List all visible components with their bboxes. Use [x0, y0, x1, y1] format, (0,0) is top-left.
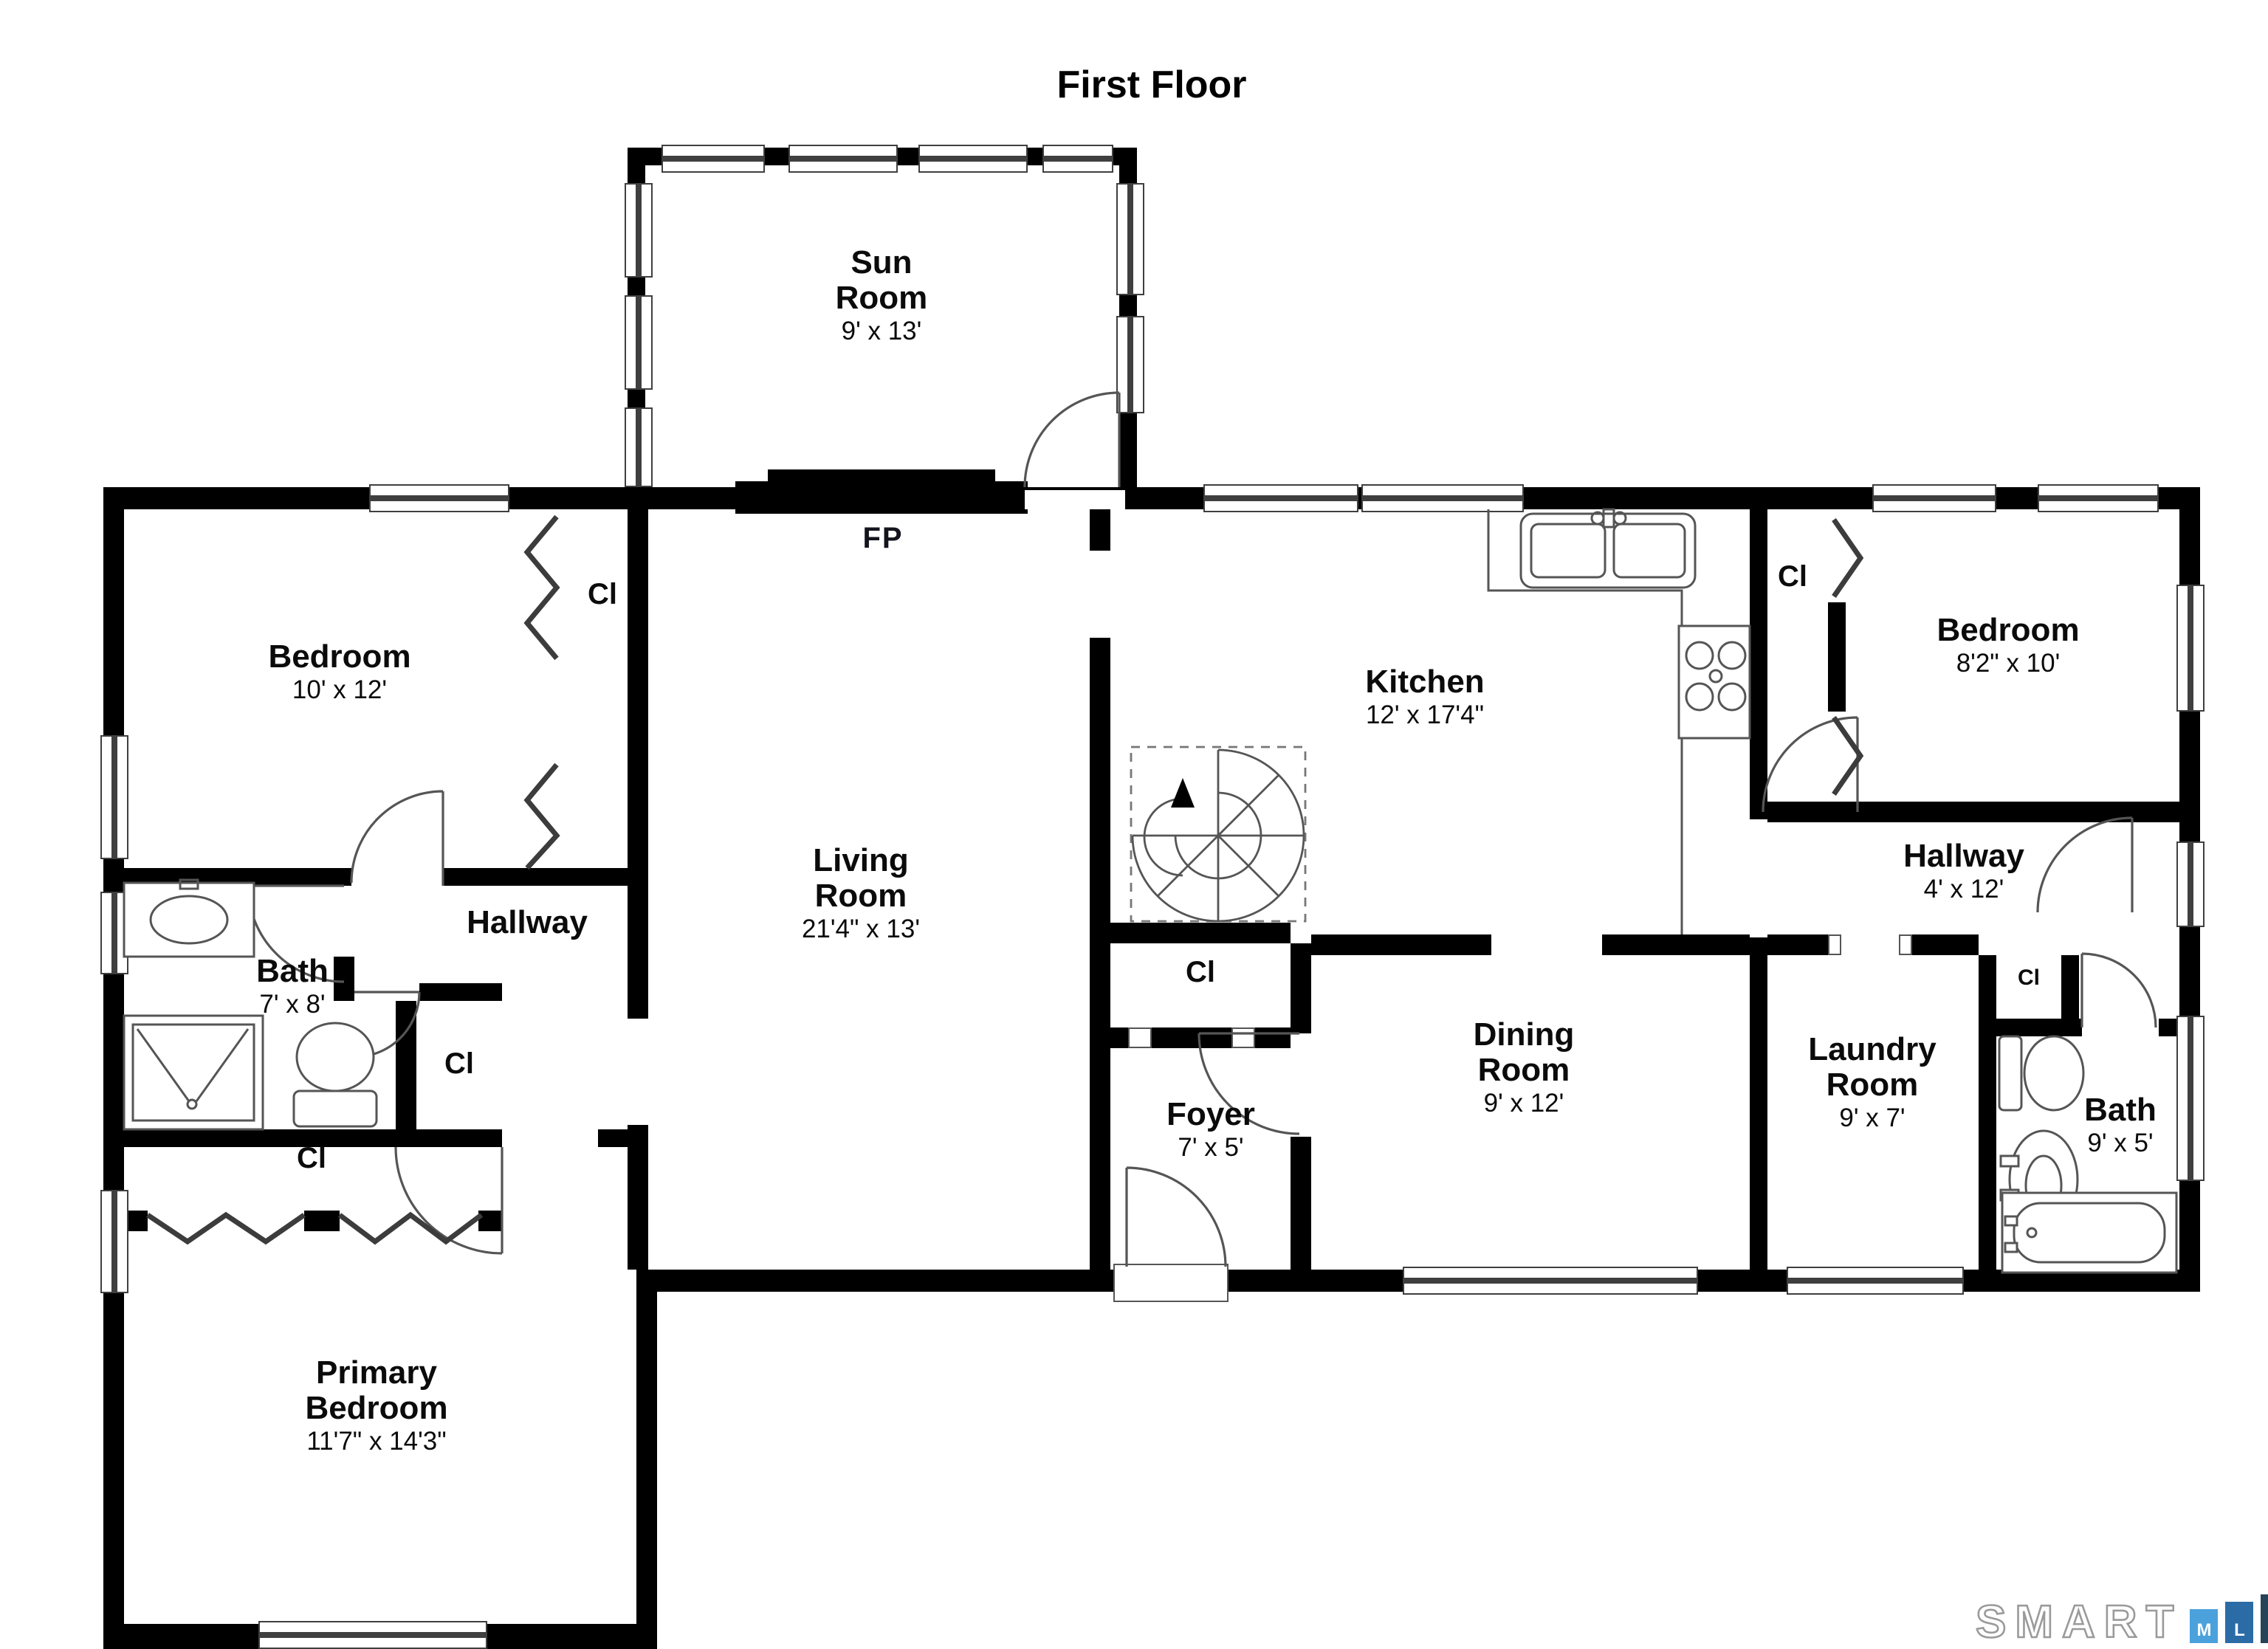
room-label-dining-room: Dining Room 9' x 12': [1447, 1017, 1601, 1118]
room-dims: 7' x 5': [1125, 1134, 1296, 1162]
room-dims: 21'4" x 13': [784, 915, 938, 943]
closet-label-bedroom-right: Cl: [1762, 561, 1824, 595]
room-label-bedroom-right: Bedroom 8'2" x 10': [1860, 613, 2156, 678]
logo-block-s: S: [2261, 1594, 2268, 1643]
logo-wordmark: SMART: [1976, 1600, 2182, 1643]
toilet-left-icon: [297, 1023, 374, 1091]
room-dims: 7' x 8': [174, 991, 410, 1019]
closet-label-bedroom-left: Cl: [571, 579, 633, 613]
room-label-hallway-left: Hallway: [409, 905, 645, 940]
closet-label-under-stairs: Cl: [1166, 957, 1234, 991]
room-label-hallway-right: Hallway 4' x 12': [1816, 839, 2111, 903]
closet-label-bath-right: Cl: [2002, 965, 2055, 991]
primary-closet-bifold-left: [148, 1215, 304, 1242]
room-name: Bedroom: [192, 639, 487, 675]
room-dims: 9' x 7': [1790, 1104, 1955, 1132]
room-label-primary-bedroom: Primary Bedroom 11'7" x 14'3": [273, 1355, 480, 1456]
room-label-foyer: Foyer 7' x 5': [1125, 1097, 1296, 1162]
room-dims: 9' x 5': [2039, 1129, 2202, 1157]
room-dims: 8'2" x 10': [1860, 650, 2156, 678]
floorplan-page: First Floor Sun Room 9' x 13' Bedroom 10…: [0, 0, 2268, 1649]
room-name: Bath: [174, 954, 410, 989]
room-name: Primary Bedroom: [273, 1355, 480, 1426]
room-dims: 11'7" x 14'3": [273, 1428, 480, 1456]
room-name: Foyer: [1125, 1097, 1296, 1132]
room-name: Hallway: [1816, 839, 2111, 874]
room-name: Sun Room: [817, 245, 946, 316]
room-name: Hallway: [409, 905, 645, 940]
bifold-doors: [148, 517, 1860, 1242]
room-label-laundry-room: Laundry Room 9' x 7': [1790, 1032, 1955, 1132]
room-name: Kitchen: [1277, 664, 1573, 700]
room-label-living-room: Living Room 21'4" x 13': [784, 843, 938, 943]
sunroom-door-arc: [1025, 393, 1119, 487]
logo-block-m: M: [2190, 1609, 2218, 1643]
room-name: Dining Room: [1447, 1017, 1601, 1088]
page-title: First Floor: [945, 62, 1358, 108]
room-name: Bath: [2039, 1092, 2202, 1128]
bedroom-right-closet-bifold-top: [1834, 520, 1860, 596]
room-dims: 12' x 17'4": [1277, 701, 1573, 729]
vanity-icon: [124, 883, 254, 957]
closet-label-primary: Cl: [281, 1143, 343, 1177]
room-dims: 4' x 12': [1816, 875, 2111, 903]
front-door-arc: [1127, 1168, 1226, 1267]
fireplace-label: FP: [824, 523, 942, 557]
room-name: Bedroom: [1860, 613, 2156, 648]
spiral-staircase: [1131, 747, 1305, 921]
room-name: Living Room: [784, 843, 938, 914]
logo-letter: L: [2234, 1617, 2245, 1643]
room-label-bedroom-left: Bedroom 10' x 12': [192, 639, 487, 704]
bath-right-door-arc: [2082, 954, 2156, 1027]
logo-letter: M: [2196, 1617, 2211, 1643]
room-name: Laundry Room: [1790, 1032, 1955, 1103]
room-label-bath-left: Bath 7' x 8': [174, 954, 410, 1019]
floorplan-canvas: First Floor Sun Room 9' x 13' Bedroom 10…: [0, 0, 2268, 1649]
closet-label-hall-small: Cl: [428, 1048, 490, 1082]
room-label-kitchen: Kitchen 12' x 17'4": [1277, 664, 1573, 729]
room-dims: 9' x 13': [817, 317, 946, 345]
bedroom-left-closet-bifold-top: [527, 517, 557, 658]
shower-icon: [124, 1016, 263, 1129]
room-label-sun-room: Sun Room 9' x 13': [817, 245, 946, 345]
stairs-up-arrow: [1171, 778, 1195, 808]
room-dims: 10' x 12': [192, 676, 487, 704]
logo-block-l: L: [2225, 1602, 2253, 1643]
room-dims: 9' x 12': [1447, 1089, 1601, 1118]
primary-closet-bifold-right: [340, 1215, 481, 1242]
smart-mls-logo: SMART M L S: [1976, 1594, 2268, 1643]
room-label-bath-right: Bath 9' x 5': [2039, 1092, 2202, 1157]
bedroom-left-door-arc: [351, 791, 443, 886]
bedroom-left-closet-bifold-bottom: [527, 765, 557, 868]
